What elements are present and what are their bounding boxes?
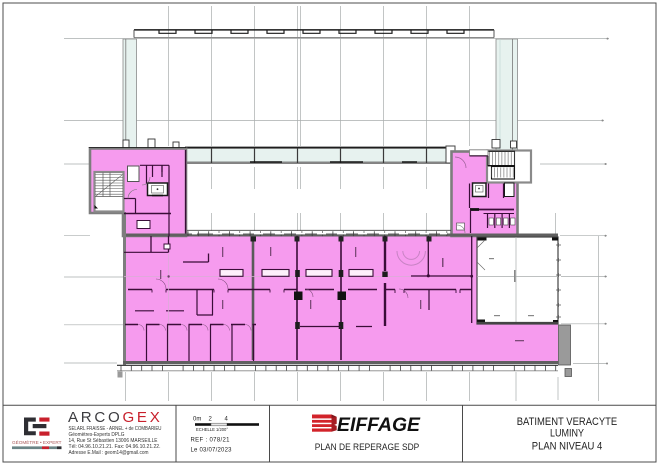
svg-text:ARCOGEX: ARCOGEX [68, 409, 163, 426]
svg-text:BATIMENT VERACYTE: BATIMENT VERACYTE [517, 416, 618, 428]
svg-text:ECHELLE 1/200°: ECHELLE 1/200° [196, 427, 228, 432]
svg-text:EIFFAGE: EIFFAGE [337, 415, 421, 436]
svg-text:Le 03/07/2023: Le 03/07/2023 [191, 448, 233, 454]
svg-text:GÉOMÈTRE • EXPERT: GÉOMÈTRE • EXPERT [12, 439, 62, 445]
svg-text:Adresse E.Mail : geom14@gmail.: Adresse E.Mail : geom14@gmail.com [69, 450, 149, 456]
svg-text:PLAN DE REPERAGE SDP: PLAN DE REPERAGE SDP [315, 442, 420, 453]
svg-text:0m: 0m [193, 416, 201, 422]
svg-text:REF : 078/21: REF : 078/21 [191, 438, 231, 444]
svg-text:LUMINY: LUMINY [550, 428, 584, 440]
svg-text:PLAN NIVEAU 4: PLAN NIVEAU 4 [532, 441, 603, 453]
